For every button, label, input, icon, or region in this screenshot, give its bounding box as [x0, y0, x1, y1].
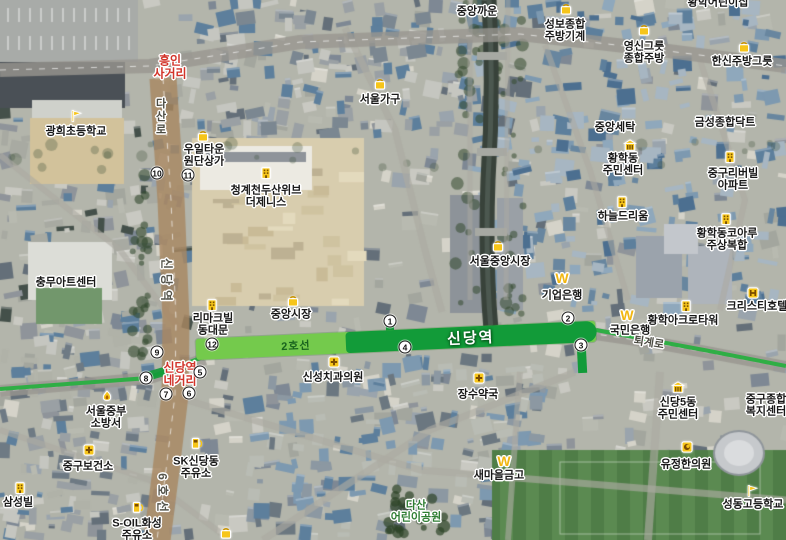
gas-station-icon	[130, 499, 146, 515]
shopping-bag-icon	[558, 1, 574, 17]
poi-label[interactable]: 유정한의원	[661, 459, 712, 471]
poi-label[interactable]: 광희초등학교	[46, 126, 107, 138]
road-label: 6호선	[155, 473, 172, 517]
building-icon	[258, 165, 274, 181]
exit-12-marker[interactable]: 12	[206, 338, 219, 351]
shopping-bag-icon	[372, 76, 388, 92]
building-icon	[722, 149, 738, 165]
shopping-bag-icon	[636, 22, 652, 38]
poi-label[interactable]: 신당5동주민센터	[658, 398, 698, 421]
won-icon: W	[620, 307, 633, 323]
poi-label[interactable]: 서울가구	[360, 94, 400, 106]
road-label: 다산로	[152, 98, 168, 137]
poi-label[interactable]: S-OIL화성주유소	[112, 519, 162, 540]
poi-label[interactable]: 장수약국	[458, 389, 498, 401]
exit-1-marker[interactable]: 1	[384, 315, 397, 328]
park-label[interactable]: 다산어린이공원	[391, 501, 442, 524]
poi-label[interactable]: 하늘드리움	[598, 211, 649, 223]
exit-9-marker[interactable]: 9	[151, 346, 164, 359]
poi-label[interactable]: 금성종합닥트	[695, 117, 756, 129]
poi-label[interactable]: 성동고등학교	[723, 499, 784, 511]
exit-7-marker[interactable]: 7	[160, 388, 173, 401]
poi-label[interactable]: 중구보건소	[63, 461, 114, 473]
poi-label[interactable]: 신성치과의원	[303, 372, 364, 384]
poi-label[interactable]: 영신그릇종합주방	[624, 42, 664, 65]
poi-label[interactable]: 황학아크로타워	[648, 315, 719, 327]
poi-label[interactable]: 중앙세탁	[595, 122, 635, 134]
exit-3-marker[interactable]: 3	[575, 339, 588, 352]
exit-8-marker[interactable]: 8	[140, 372, 153, 385]
poi-label[interactable]: 리마크빌동대문	[193, 314, 233, 337]
exit-11-marker[interactable]: 11	[182, 169, 195, 182]
road-label: 신당역	[159, 258, 176, 306]
government-icon	[670, 379, 686, 395]
satellite-map[interactable]: 2호선 신당역 중앙까운황학어린이집성보종합주방기계영신그릇종합주방한신주방그릇…	[0, 0, 786, 540]
shopping-bag-icon	[195, 128, 211, 144]
exit-5-marker[interactable]: 5	[194, 366, 207, 379]
intersection-label: 흥인사거리	[153, 55, 186, 80]
exit-2-marker[interactable]: 2	[562, 312, 575, 325]
shopping-bag-icon	[218, 525, 234, 540]
government-icon	[622, 137, 638, 153]
poi-label[interactable]: 황학어린이집	[688, 0, 749, 9]
poi-label[interactable]: 한신주방그릇	[712, 56, 773, 68]
poi-label[interactable]: 기업은행	[542, 290, 582, 302]
school-flag-icon	[68, 108, 84, 124]
building-icon	[678, 298, 694, 314]
poi-label[interactable]: 성보종합주방기계	[545, 20, 585, 43]
building-icon	[204, 297, 220, 313]
won-icon: W	[555, 270, 568, 286]
exit-10-marker[interactable]: 10	[151, 167, 164, 180]
poi-label[interactable]: 삼성빌	[3, 497, 33, 509]
poi-label[interactable]: 크리스티호텔	[727, 301, 786, 313]
poi-label[interactable]: 우일타운원단상가	[184, 145, 224, 168]
label-layer: 중앙까운황학어린이집성보종합주방기계영신그릇종합주방한신주방그릇서울가구광희초등…	[0, 0, 786, 540]
poi-label[interactable]: 서울중앙시장	[470, 256, 531, 268]
poi-label[interactable]: 충무아트센터	[36, 277, 97, 289]
hotel-icon	[745, 285, 761, 301]
clinic-icon	[679, 439, 695, 455]
building-icon	[718, 211, 734, 227]
gas-station-icon	[189, 435, 205, 451]
medical-cross-icon	[471, 370, 487, 386]
school-flag-icon	[744, 483, 760, 499]
poi-label[interactable]: 청계천두산위브더제니스	[231, 186, 302, 209]
building-icon	[12, 480, 28, 496]
poi-label[interactable]: 황학동주민센터	[603, 154, 643, 177]
exit-6-marker[interactable]: 6	[183, 387, 196, 400]
poi-label[interactable]: 중앙시장	[271, 309, 311, 321]
medical-cross-icon	[326, 354, 342, 370]
shopping-bag-icon	[285, 293, 301, 309]
fire-station-icon	[99, 389, 115, 405]
building-icon	[614, 194, 630, 210]
exit-4-marker[interactable]: 4	[399, 341, 412, 354]
road-label: 퇴계로	[633, 332, 666, 353]
poi-label[interactable]: 서울중부소방서	[86, 407, 126, 430]
poi-label[interactable]: 중구리버빌아파트	[708, 169, 759, 192]
poi-label[interactable]: SK신당동주유소	[173, 457, 219, 480]
poi-label[interactable]: 새마을금고	[474, 470, 525, 482]
poi-label[interactable]: 황학동코아루주상복합	[697, 229, 758, 252]
intersection-label: 신당역네거리	[163, 362, 196, 387]
poi-label[interactable]: 중앙까운	[457, 6, 497, 18]
shopping-bag-icon	[490, 238, 506, 254]
medical-cross-icon	[81, 442, 97, 458]
poi-label[interactable]: 중구종합복지센터	[746, 395, 786, 418]
won-icon: W	[497, 453, 510, 469]
shopping-bag-icon	[736, 39, 752, 55]
